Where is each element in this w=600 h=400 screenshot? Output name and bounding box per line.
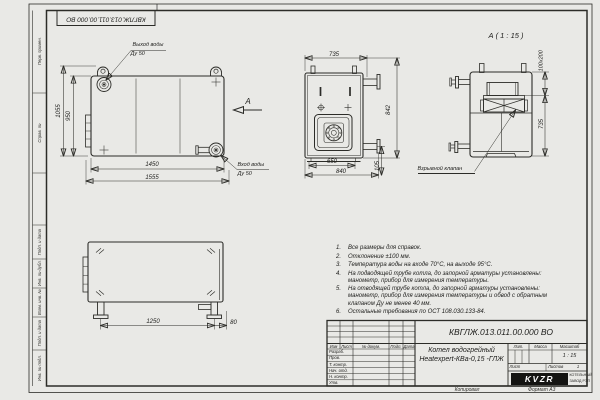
support-legs [94,302,222,319]
notes-list: 1.Все размеры для справок. 2.Отклонение … [336,245,564,318]
weld-marks [96,248,215,296]
drawing-sheet: КВГЛЖ.013.011.00.000 ВО Перв. примен. Сп… [0,0,600,400]
dim-1450: 1450 [137,162,167,168]
burner-door [315,115,353,151]
boiler-body [91,76,224,156]
sheets-value: 1 [574,365,582,369]
outlet-label: Выход воды [128,43,168,49]
outlet-dn-label: Ду 50 [131,52,145,58]
sheets-label: Листов [548,365,563,369]
rear-body [470,72,532,157]
row-nachotd: Нач. отд. [329,369,348,373]
copied-label: Копировал [448,388,486,393]
flue-collar [487,83,518,96]
rear-pipe-stubs [449,77,470,153]
dim-735: 735 [319,52,349,58]
product-name-line2: Heatexpert-КВа-0,15 -ГЛЖ [416,356,507,363]
view-bottom-lineart [83,242,227,330]
sheet-label: Лист [510,365,521,369]
dim-80: 80 [227,320,240,326]
dim-1250: 1250 [138,319,168,325]
drawing-lineart [0,0,600,400]
water-inlet-flange [196,143,223,157]
company-name-line2: ЗАВОД РЭП [570,380,591,384]
mass-label: Масса [529,345,552,349]
dim-842: 842 [386,99,392,121]
dim-840: 840 [326,169,356,175]
water-outlet-flange [97,78,111,92]
kvzr-logo: KVZR [511,373,568,385]
row-prov: Пров. [329,356,340,360]
title-block-designation: КВГЛЖ.013.011.00.000 ВО [417,328,585,337]
row-razrab: Разраб. [329,350,344,354]
note-item: 1.Все размеры для справок. [336,245,564,252]
frame-cell-label: Справ. № [37,108,41,158]
row-utv: Утв. [329,381,339,385]
front-panel [305,73,363,158]
detail-view-title: А ( 1 : 15 ) [471,32,541,40]
explosion-valve-label: Взрывной клапан [418,167,475,175]
boiler-shell [88,242,223,302]
format-label: Формат А3 [528,388,555,393]
lifting-lug [211,67,222,76]
side-pipe-stubs [363,75,380,154]
note-item: 2.Отклонение ±100 мм. [336,254,564,261]
col-doc: № докум. [353,345,389,349]
company-name-line1: КОТЕЛЬНЫЙ [570,374,593,378]
explosion-valve [481,96,528,113]
col-list: Лист [340,345,353,349]
dim-1555: 1555 [137,175,167,181]
product-name-line1: Котел водогрейный [416,347,507,354]
view-direction-arrow [234,107,263,114]
inlet-label: Вход воды [238,163,265,169]
dim-650: 650 [317,159,347,165]
inlet-dn-label: Ду 50 [238,172,252,178]
scale-value: 1 : 15 [552,354,587,360]
col-izm: Изм [327,345,340,349]
row-nkontr: Н. контр. [329,375,348,379]
top-designation: КВГЛЖ.013.011.00.000 ВО [58,15,154,22]
view-detail-a-lineart [449,64,549,172]
lit-label: Лит. [508,345,529,349]
note-item: 5.На отводящей трубе котла, до запорной … [336,286,564,307]
scale-label: Масштаб [552,345,587,349]
frame-cell-label: Перв. примен. [37,26,41,76]
lifting-lug [98,67,109,76]
note-item: 6.Остальные требования по ОСТ 108.030.13… [336,309,564,316]
dim-105: 105 [375,156,381,176]
note-item: 4.На подводящей трубе котла, до запорной… [336,271,564,285]
dim-950: 950 [66,101,72,131]
note-item: 3.Температура воды на входе 70°С, на вых… [336,262,564,269]
col-date: Дата [403,345,415,349]
frame-cell-label: Инв. № подл. [37,343,41,393]
dim-1055: 1055 [56,96,62,126]
view-arrow-label: А [241,98,255,106]
dim-100x200: 100х200 [539,47,545,73]
dim-735-detail: 735 [539,114,545,134]
col-sign: Подп. [389,345,403,349]
row-tkontr: Т. контр. [329,363,347,367]
